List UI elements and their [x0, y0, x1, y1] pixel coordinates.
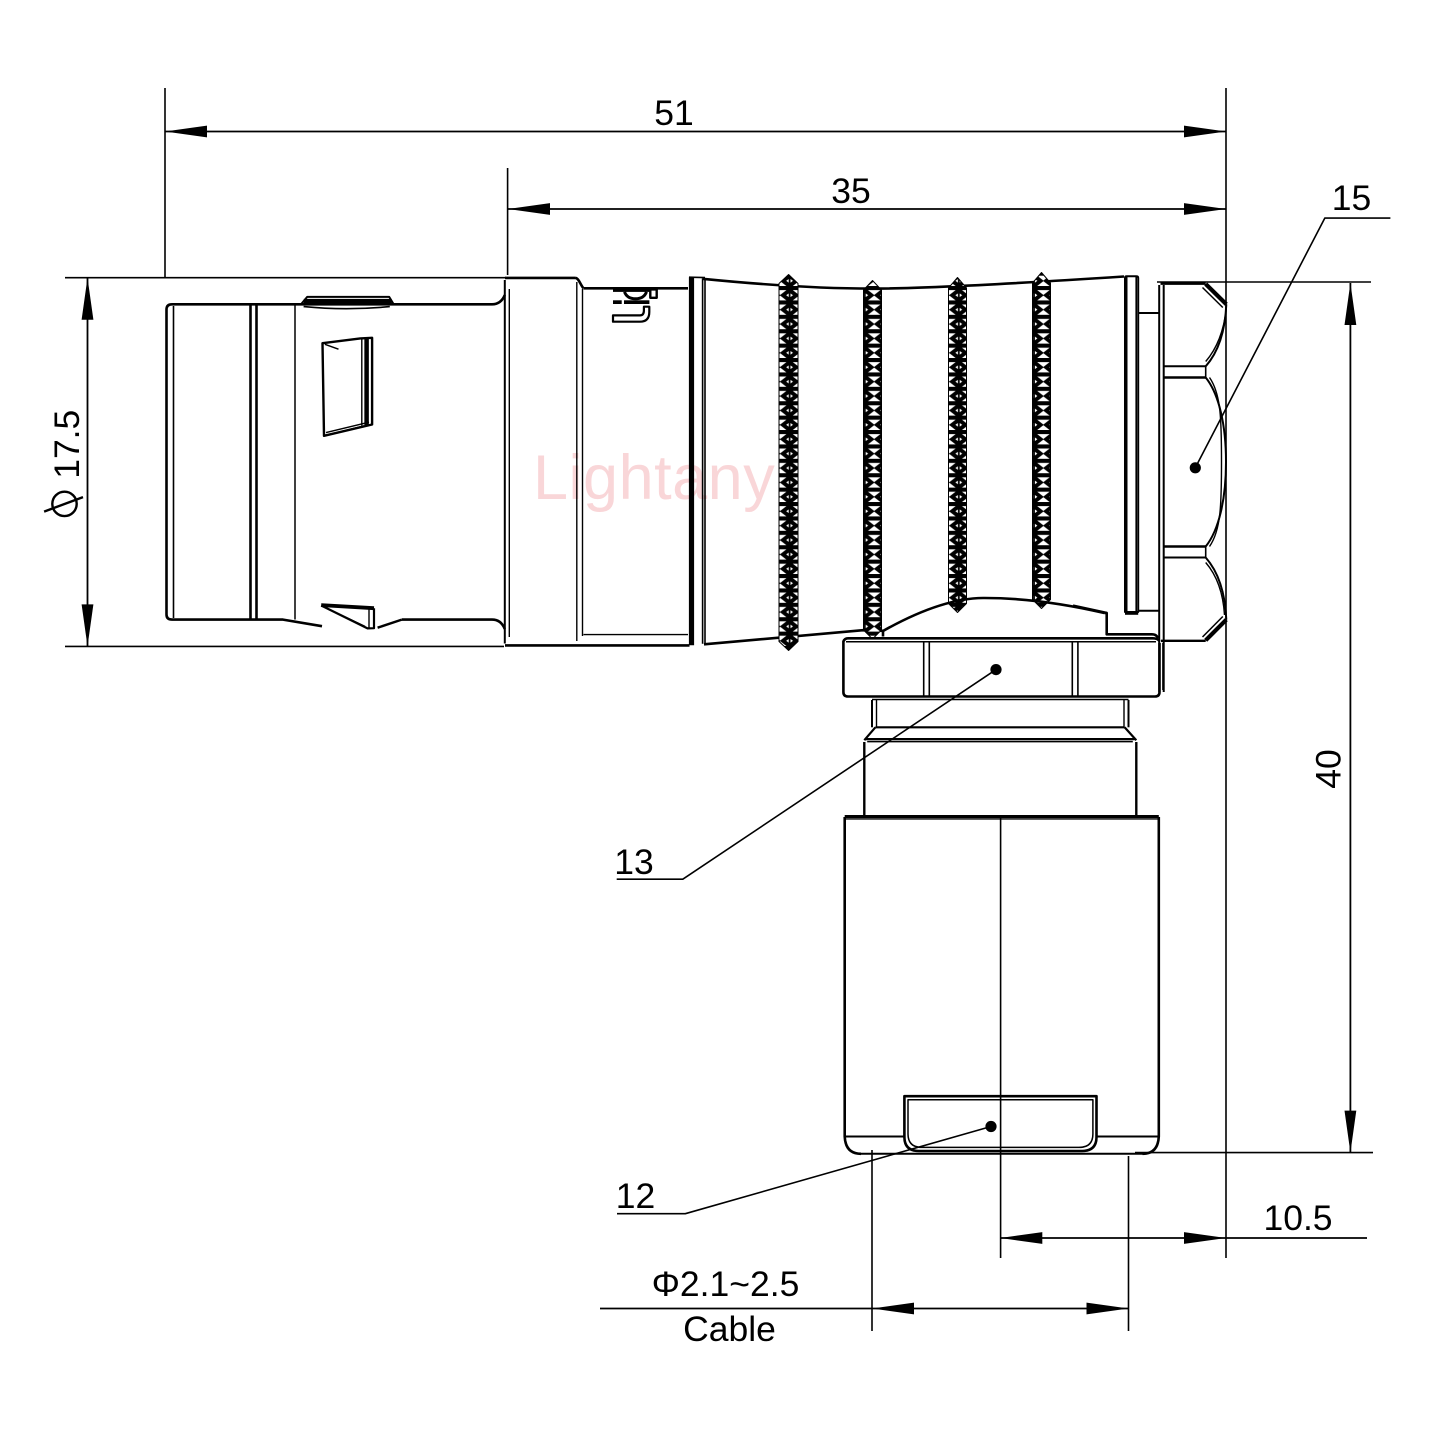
svg-text:17.5: 17.5: [47, 410, 87, 479]
svg-text:Φ2.1~2.5: Φ2.1~2.5: [652, 1264, 800, 1304]
svg-text:13: 13: [614, 842, 654, 882]
svg-text:35: 35: [831, 171, 871, 211]
svg-text:10.5: 10.5: [1263, 1198, 1332, 1238]
svg-text:15: 15: [1332, 178, 1372, 218]
svg-text:40: 40: [1309, 749, 1349, 789]
svg-text:12: 12: [616, 1176, 656, 1216]
svg-text:Cable: Cable: [683, 1309, 776, 1349]
svg-text:51: 51: [654, 93, 694, 133]
svg-text:Lightany: Lightany: [533, 443, 775, 513]
